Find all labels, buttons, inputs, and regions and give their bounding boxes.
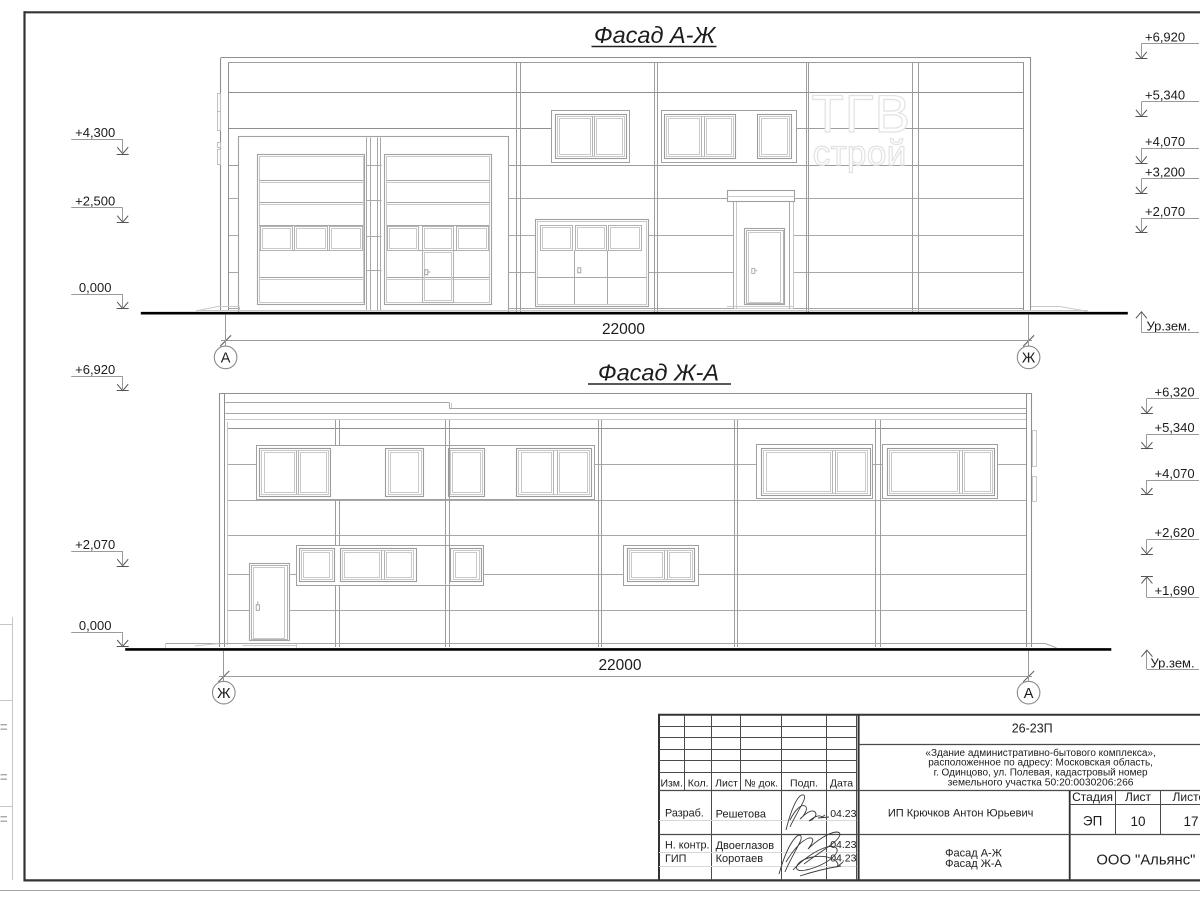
svg-text:+2,070: +2,070 <box>75 537 115 552</box>
svg-text:+3,200: +3,200 <box>1145 165 1185 180</box>
svg-text:Подп.: Подп. <box>790 777 818 789</box>
svg-text:Лист: Лист <box>715 777 738 789</box>
svg-text:+6,920: +6,920 <box>1145 30 1185 45</box>
svg-text:10: 10 <box>1130 814 1145 829</box>
svg-text:Фасад Ж-А: Фасад Ж-А <box>598 360 719 386</box>
svg-text:+5,340: +5,340 <box>1155 420 1195 435</box>
svg-text:Ур.зем.: Ур.зем. <box>1151 655 1195 670</box>
svg-text:Двоеглазов: Двоеглазов <box>716 840 775 852</box>
svg-text:0,000: 0,000 <box>79 618 112 633</box>
svg-text:Коротаев: Коротаев <box>716 853 764 865</box>
svg-text:04.23: 04.23 <box>830 808 856 820</box>
svg-text:ИП Крючков Антон Юрьевич: ИП Крючков Антон Юрьевич <box>888 807 1033 819</box>
svg-text:Ур.зем.: Ур.зем. <box>1147 318 1191 333</box>
svg-text:Фасад Ж-А: Фасад Ж-А <box>945 858 1002 870</box>
svg-text:0,000: 0,000 <box>79 280 112 295</box>
svg-text:ООО "Альянс": ООО "Альянс" <box>1096 853 1195 869</box>
svg-text:+1,690: +1,690 <box>1155 583 1195 598</box>
svg-text:+2,070: +2,070 <box>1145 204 1185 219</box>
svg-text:22000: 22000 <box>598 657 641 674</box>
svg-text:Н. контр.: Н. контр. <box>665 840 710 852</box>
svg-text:Решетова: Решетова <box>716 808 767 820</box>
svg-text:№ док.: № док. <box>744 777 778 789</box>
svg-text:+2,500: +2,500 <box>75 194 115 209</box>
svg-text:Кол.: Кол. <box>688 777 709 789</box>
svg-text:А: А <box>1024 686 1034 702</box>
svg-text:+5,340: +5,340 <box>1145 88 1185 103</box>
svg-text:+6,320: +6,320 <box>1155 384 1195 399</box>
svg-text:+4,070: +4,070 <box>1155 466 1195 481</box>
svg-text:+6,920: +6,920 <box>75 362 115 377</box>
svg-text:17: 17 <box>1183 814 1198 829</box>
svg-text:04.23: 04.23 <box>830 853 856 865</box>
svg-text:Стадия: Стадия <box>1072 790 1113 804</box>
svg-text:Ж: Ж <box>1022 351 1036 367</box>
svg-text:Разраб.: Разраб. <box>665 808 704 820</box>
svg-text:+2,620: +2,620 <box>1155 525 1195 540</box>
svg-text:+4,070: +4,070 <box>1145 134 1185 149</box>
svg-text:Лист: Лист <box>1125 790 1152 804</box>
svg-text:Листов: Листов <box>1173 790 1200 804</box>
svg-text:Изм.: Изм. <box>660 777 683 789</box>
svg-text:ЭП: ЭП <box>1083 814 1102 829</box>
svg-text:строй: строй <box>813 134 907 173</box>
svg-text:Фасад А-Ж: Фасад А-Ж <box>594 22 717 48</box>
svg-text:26-23П: 26-23П <box>1012 722 1053 736</box>
svg-text:04.23: 04.23 <box>830 839 856 851</box>
svg-text:22000: 22000 <box>602 321 645 338</box>
svg-text:+4,300: +4,300 <box>75 125 115 140</box>
svg-text:Дата: Дата <box>830 777 853 789</box>
svg-text:А: А <box>221 351 231 367</box>
svg-text:Ж: Ж <box>217 686 231 702</box>
svg-text:ГИП: ГИП <box>665 853 686 865</box>
svg-text:земельного участка 50:20:00302: земельного участка 50:20:0030206:266 <box>948 777 1134 788</box>
